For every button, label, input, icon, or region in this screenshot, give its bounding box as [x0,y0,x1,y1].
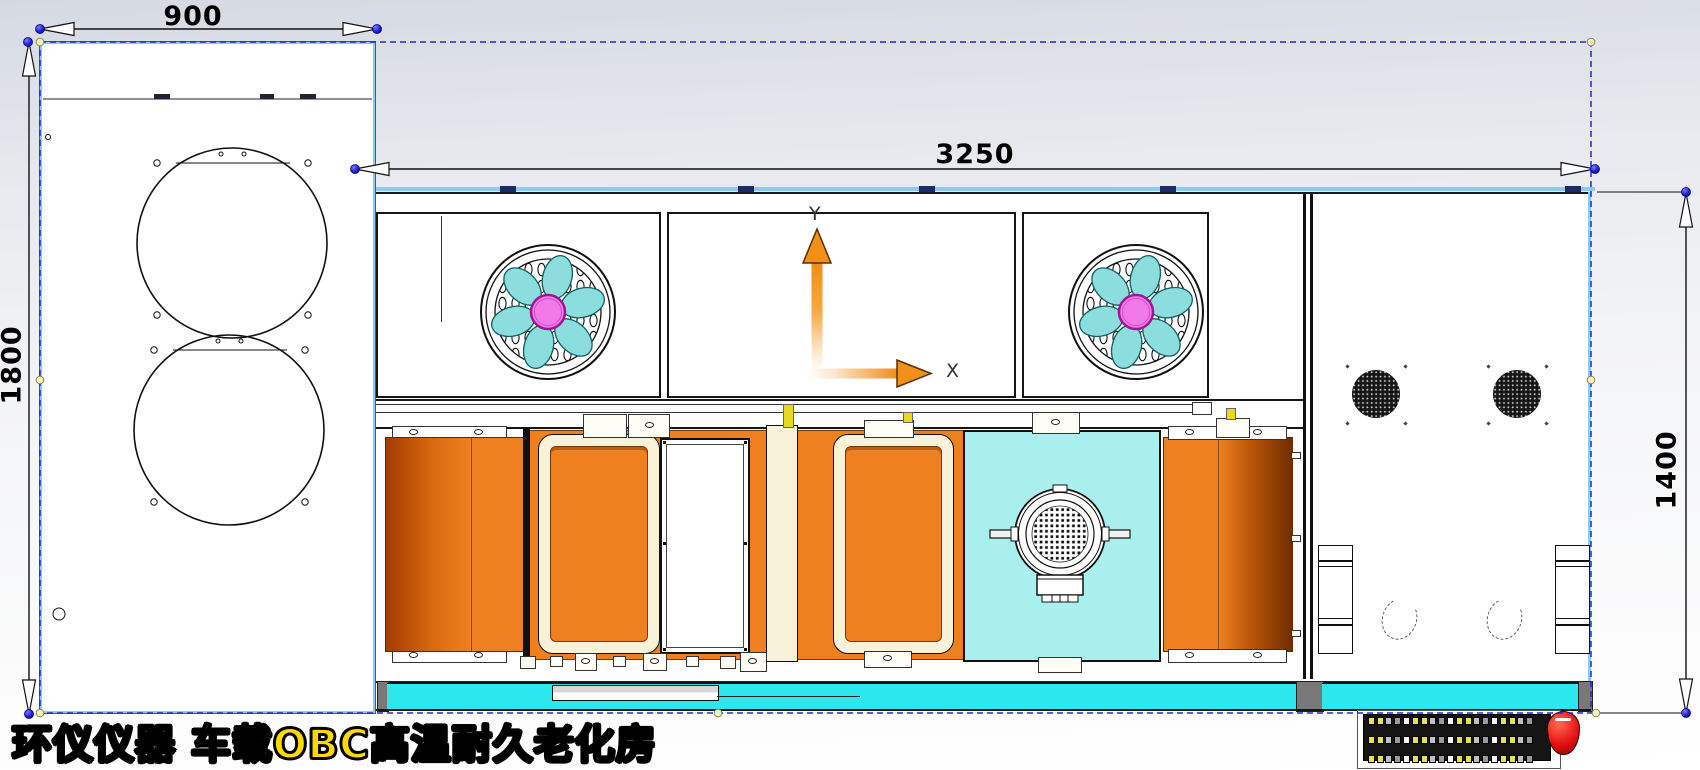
dim-main-unit-height: 1400 [1652,446,1683,510]
watermark-text: 环仪仪器 车载OBC高温耐久老化房 [12,712,657,770]
dimension-overlay [0,0,1700,770]
cad-viewport: Y X [0,0,1700,770]
dim-left-unit-width: 900 [150,1,236,32]
dim-main-unit-width: 3250 [930,139,1020,170]
dim-left-unit-height: 1800 [0,341,28,405]
